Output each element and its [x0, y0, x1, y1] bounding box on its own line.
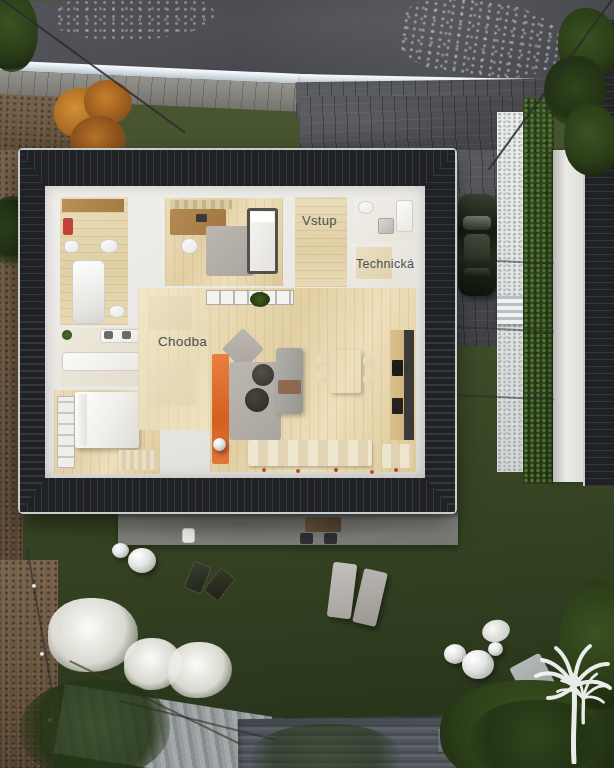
sofa-throw — [278, 380, 301, 394]
coffee-table — [252, 364, 274, 386]
decor-sphere — [462, 650, 494, 679]
garden-chair — [324, 533, 337, 544]
green-plant — [62, 330, 72, 340]
neighbor-house-roof — [585, 146, 614, 486]
fence-post-cap — [40, 652, 44, 656]
single-bed-pillow — [251, 212, 274, 222]
bidet — [109, 305, 125, 318]
kitchen-cooktop — [392, 398, 403, 414]
decor-sphere — [488, 642, 503, 656]
garden-table — [305, 517, 341, 532]
room-label-technicka: Technická — [356, 257, 414, 271]
dining-chair — [363, 356, 375, 367]
dining-chair — [316, 354, 328, 365]
canopy-bottom-left — [20, 680, 170, 768]
neighbor-steps — [497, 296, 523, 324]
patio-shadow — [118, 511, 458, 520]
sink-bowl — [122, 331, 131, 339]
sink-bowl — [104, 331, 113, 339]
washing-machine — [378, 218, 394, 234]
vanity — [396, 200, 413, 232]
gravel-path — [497, 112, 524, 472]
toilet-2 — [358, 201, 374, 214]
grill — [182, 528, 195, 543]
room-label-chodba: Chodba — [158, 334, 207, 349]
bench-seat-2 — [382, 444, 412, 468]
bathtub-2 — [62, 352, 144, 371]
coffee-table-2 — [245, 388, 269, 412]
window-flowers — [262, 468, 266, 472]
kitchen-oven — [392, 360, 403, 376]
bathtub — [72, 260, 105, 324]
bench-seat — [248, 440, 372, 466]
car-windshield — [463, 216, 491, 230]
desk-chair — [181, 238, 198, 254]
tree-top-right — [540, 8, 614, 178]
garden-chair — [300, 533, 313, 544]
car-rear-window — [464, 268, 490, 278]
aerial-render-scene: Vstup Technická Špajza Chodba NEWLIVING — [0, 0, 614, 768]
dining-chair — [363, 374, 375, 385]
toilet — [100, 239, 118, 253]
red-towel — [63, 218, 73, 235]
bathroom-counter — [62, 199, 124, 212]
neighbor-house-wall — [553, 150, 586, 482]
driveway-court — [300, 96, 510, 158]
room-label-vstup: Vstup — [302, 213, 337, 228]
dining-table — [330, 350, 361, 393]
floor-lamp — [213, 438, 226, 451]
fence-post-cap — [32, 584, 36, 588]
palm-trees-logo-icon — [528, 612, 614, 764]
sun-lounger — [352, 568, 388, 627]
curtain — [170, 200, 232, 209]
kitchen-wall-units — [404, 330, 414, 440]
chodba-mat — [148, 296, 192, 330]
washbasin — [64, 240, 79, 253]
room-vstup — [295, 197, 347, 287]
bed-pillows — [77, 394, 87, 446]
parked-car — [458, 194, 496, 296]
blossom-tree — [168, 642, 232, 698]
decor-sphere — [112, 543, 129, 558]
dining-chair — [316, 372, 328, 383]
chodba-mat — [146, 362, 196, 406]
wardrobe — [57, 396, 75, 468]
sun-lounger — [327, 562, 358, 620]
parasol — [480, 617, 513, 645]
bedroom-rug — [118, 450, 158, 470]
decor-sphere — [128, 548, 156, 573]
houseplant — [250, 292, 270, 307]
desk-laptop — [196, 214, 207, 222]
